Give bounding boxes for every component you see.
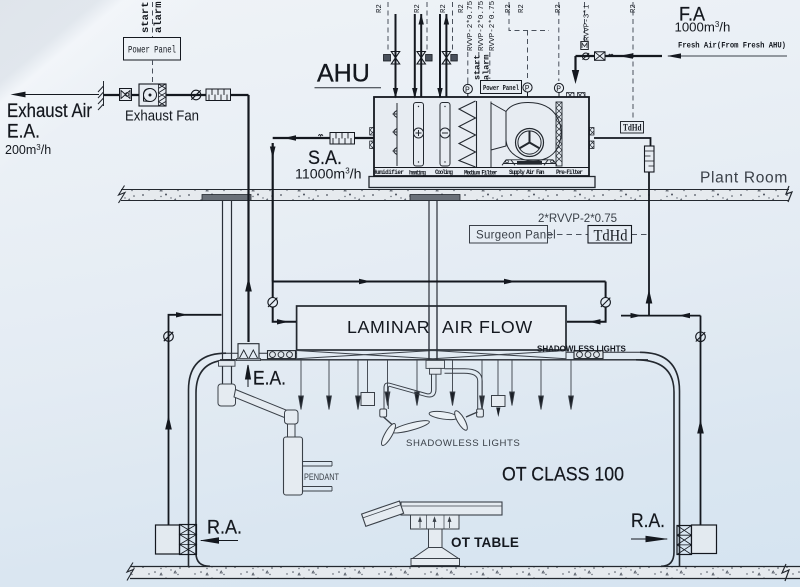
svg-text:P: P — [525, 85, 530, 94]
svg-text:TdHd: TdHd — [594, 228, 628, 245]
svg-text:11000m3/h: 11000m3/h — [295, 167, 362, 183]
svg-text:RVVP-2*0.75: RVVP-2*0.75 — [489, 0, 497, 51]
svg-text:Pre-Filter: Pre-Filter — [556, 169, 583, 176]
svg-text:Humidifier: Humidifier — [373, 169, 404, 176]
svg-text:RVVP-2*0.75: RVVP-2*0.75 — [478, 0, 486, 51]
svg-text:R2: R2 — [440, 4, 448, 13]
svg-text:AIR FLOW: AIR FLOW — [442, 317, 533, 337]
svg-text:heating: heating — [409, 170, 426, 177]
svg-text:P: P — [556, 85, 561, 94]
svg-text:R.A.: R.A. — [207, 518, 242, 539]
svg-text:start: start — [140, 1, 152, 33]
svg-text:SHADOWLESS LIGHTS: SHADOWLESS LIGHTS — [406, 438, 520, 449]
svg-text:R2: R2 — [376, 4, 384, 13]
svg-text:R2: R2 — [414, 4, 422, 13]
svg-text:alarm: alarm — [482, 54, 492, 80]
svg-text:RVVP-3*1: RVVP-3*1 — [584, 4, 592, 41]
svg-text:R2: R2 — [505, 4, 513, 13]
svg-text:LAMINAR: LAMINAR — [347, 317, 430, 337]
svg-text:OT TABLE: OT TABLE — [451, 535, 519, 550]
svg-text:R2: R2 — [555, 4, 563, 13]
svg-text:Medium Filter: Medium Filter — [464, 170, 498, 177]
svg-text:R2: R2 — [518, 4, 526, 13]
svg-text:PENDANT: PENDANT — [304, 472, 339, 482]
svg-text:Plant Room: Plant Room — [700, 170, 788, 187]
svg-text:TdHd: TdHd — [623, 124, 642, 134]
svg-text:Surgeon Panel: Surgeon Panel — [476, 230, 556, 242]
svg-text:OT CLASS 100: OT CLASS 100 — [502, 465, 624, 486]
svg-text:2*RVVP-2*0.75: 2*RVVP-2*0.75 — [538, 213, 617, 225]
svg-text:1000m3/h: 1000m3/h — [675, 20, 731, 35]
svg-text:alarm: alarm — [153, 1, 165, 33]
svg-text:200m3/h: 200m3/h — [5, 143, 51, 157]
svg-text:E.A.: E.A. — [253, 369, 286, 390]
svg-text:RVVP-2*0.75: RVVP-2*0.75 — [467, 0, 475, 51]
svg-text:AHU: AHU — [317, 60, 370, 88]
svg-text:Power Panel: Power Panel — [128, 45, 176, 57]
svg-text:E.A.: E.A. — [7, 122, 40, 143]
svg-text:Exhaust Fan: Exhaust Fan — [125, 109, 199, 125]
svg-text:Power Panel: Power Panel — [483, 85, 519, 93]
svg-text:P: P — [465, 86, 470, 95]
svg-text:R2: R2 — [630, 4, 638, 13]
svg-text:Exhaust Air: Exhaust Air — [7, 101, 93, 122]
svg-text:SHADOWLESS LIGHTS: SHADOWLESS LIGHTS — [537, 345, 627, 354]
svg-text:R.A.: R.A. — [631, 511, 665, 532]
svg-text:R2: R2 — [458, 4, 466, 13]
svg-text:Fresh Air(From Fresh AHU): Fresh Air(From Fresh AHU) — [678, 41, 786, 51]
svg-text:Supply Air Fan: Supply Air Fan — [509, 169, 545, 176]
svg-text:Cooling: Cooling — [435, 169, 453, 176]
